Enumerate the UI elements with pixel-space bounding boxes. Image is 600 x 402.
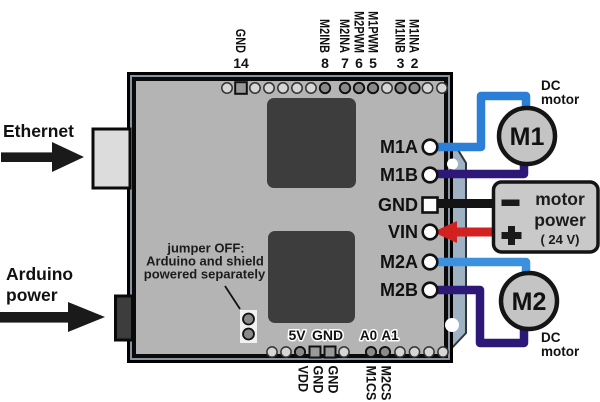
- svg-text:Arduino: Arduino: [6, 264, 73, 284]
- svg-text:2: 2: [411, 55, 419, 71]
- svg-text:motor: motor: [541, 344, 580, 359]
- svg-text:7: 7: [341, 55, 349, 71]
- svg-text:DC: DC: [541, 330, 561, 345]
- svg-text:power: power: [534, 210, 586, 230]
- svg-text:M2INB: M2INB: [317, 19, 333, 53]
- svg-text:5: 5: [369, 55, 377, 71]
- svg-text:M1B: M1B: [380, 165, 418, 185]
- svg-text:M1INA: M1INA: [406, 19, 422, 53]
- svg-text:M1PWM: M1PWM: [365, 11, 381, 53]
- svg-text:3: 3: [397, 55, 405, 71]
- svg-text:DC: DC: [541, 78, 561, 93]
- svg-text:VIN: VIN: [388, 222, 418, 242]
- svg-text:6: 6: [355, 55, 363, 71]
- svg-text:GND: GND: [325, 366, 341, 394]
- svg-text:GND: GND: [312, 327, 343, 343]
- svg-text:M2CS: M2CS: [378, 366, 394, 401]
- svg-text:14: 14: [233, 55, 249, 71]
- svg-text:A0: A0: [360, 328, 377, 343]
- svg-text:M2: M2: [512, 288, 547, 316]
- svg-text:8: 8: [321, 55, 329, 71]
- svg-text:M1INB: M1INB: [392, 19, 408, 53]
- svg-text:GND: GND: [378, 195, 418, 215]
- svg-text:A1: A1: [381, 328, 399, 343]
- svg-text:M1A: M1A: [380, 137, 418, 157]
- svg-text:motor: motor: [541, 92, 580, 107]
- svg-text:M2B: M2B: [380, 280, 418, 300]
- svg-text:M1: M1: [510, 123, 545, 151]
- svg-text:powered separately: powered separately: [144, 267, 266, 282]
- svg-text:GND: GND: [310, 366, 326, 394]
- svg-text:( 24 V): ( 24 V): [540, 232, 579, 247]
- svg-text:M2A: M2A: [380, 252, 418, 272]
- svg-text:motor: motor: [535, 189, 585, 209]
- svg-text:power: power: [6, 285, 58, 305]
- svg-text:M2PWM: M2PWM: [351, 11, 367, 53]
- svg-text:M1CS: M1CS: [363, 366, 379, 401]
- svg-text:M2INA: M2INA: [337, 19, 353, 53]
- svg-text:VDD: VDD: [295, 366, 311, 393]
- svg-text:Ethernet: Ethernet: [3, 121, 74, 141]
- svg-text:GND: GND: [233, 29, 249, 53]
- svg-text:5V: 5V: [288, 327, 306, 343]
